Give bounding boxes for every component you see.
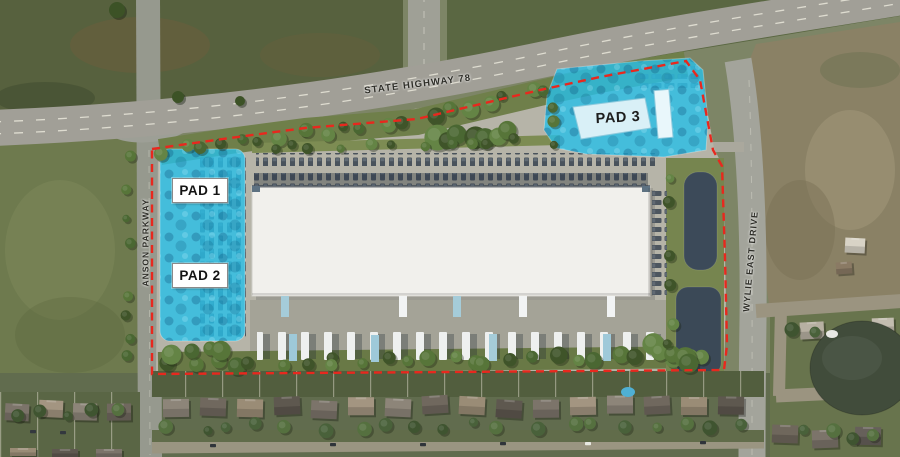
aerial-site-plan: STATE HIGHWAY 78 ANSON PARKWAY WYLIE EAS… <box>0 0 900 457</box>
house-roof <box>845 237 868 255</box>
house-roof <box>681 397 709 417</box>
house-roof <box>52 449 80 457</box>
house-roof <box>570 397 598 417</box>
detention-pond-north <box>684 172 717 270</box>
house-roof <box>200 398 229 419</box>
house-roof <box>385 398 414 419</box>
warehouse-building <box>252 185 655 300</box>
house-roof <box>237 399 265 420</box>
house-roof <box>644 395 673 416</box>
anson-parkway-label: ANSON PARKWAY <box>141 191 154 295</box>
house-roof <box>274 396 303 417</box>
pad-2-label: PAD 2 <box>172 263 228 288</box>
house-roof <box>163 399 191 419</box>
house-roof <box>718 396 746 417</box>
house-roof <box>311 400 340 421</box>
house-roof <box>772 425 801 446</box>
house-roof <box>96 449 124 457</box>
house-roof <box>836 261 855 276</box>
house-roof <box>348 397 376 417</box>
pad-1-label: PAD 1 <box>172 178 228 203</box>
backyard-pool <box>621 387 635 397</box>
house-roof <box>458 396 487 417</box>
house-roof <box>10 448 38 457</box>
house-roof <box>495 399 524 421</box>
house-roof <box>533 400 561 420</box>
house-roof <box>607 396 635 416</box>
aerial-base <box>0 0 900 457</box>
house-roof <box>421 395 450 417</box>
pad-3-label: PAD 3 <box>582 105 653 131</box>
